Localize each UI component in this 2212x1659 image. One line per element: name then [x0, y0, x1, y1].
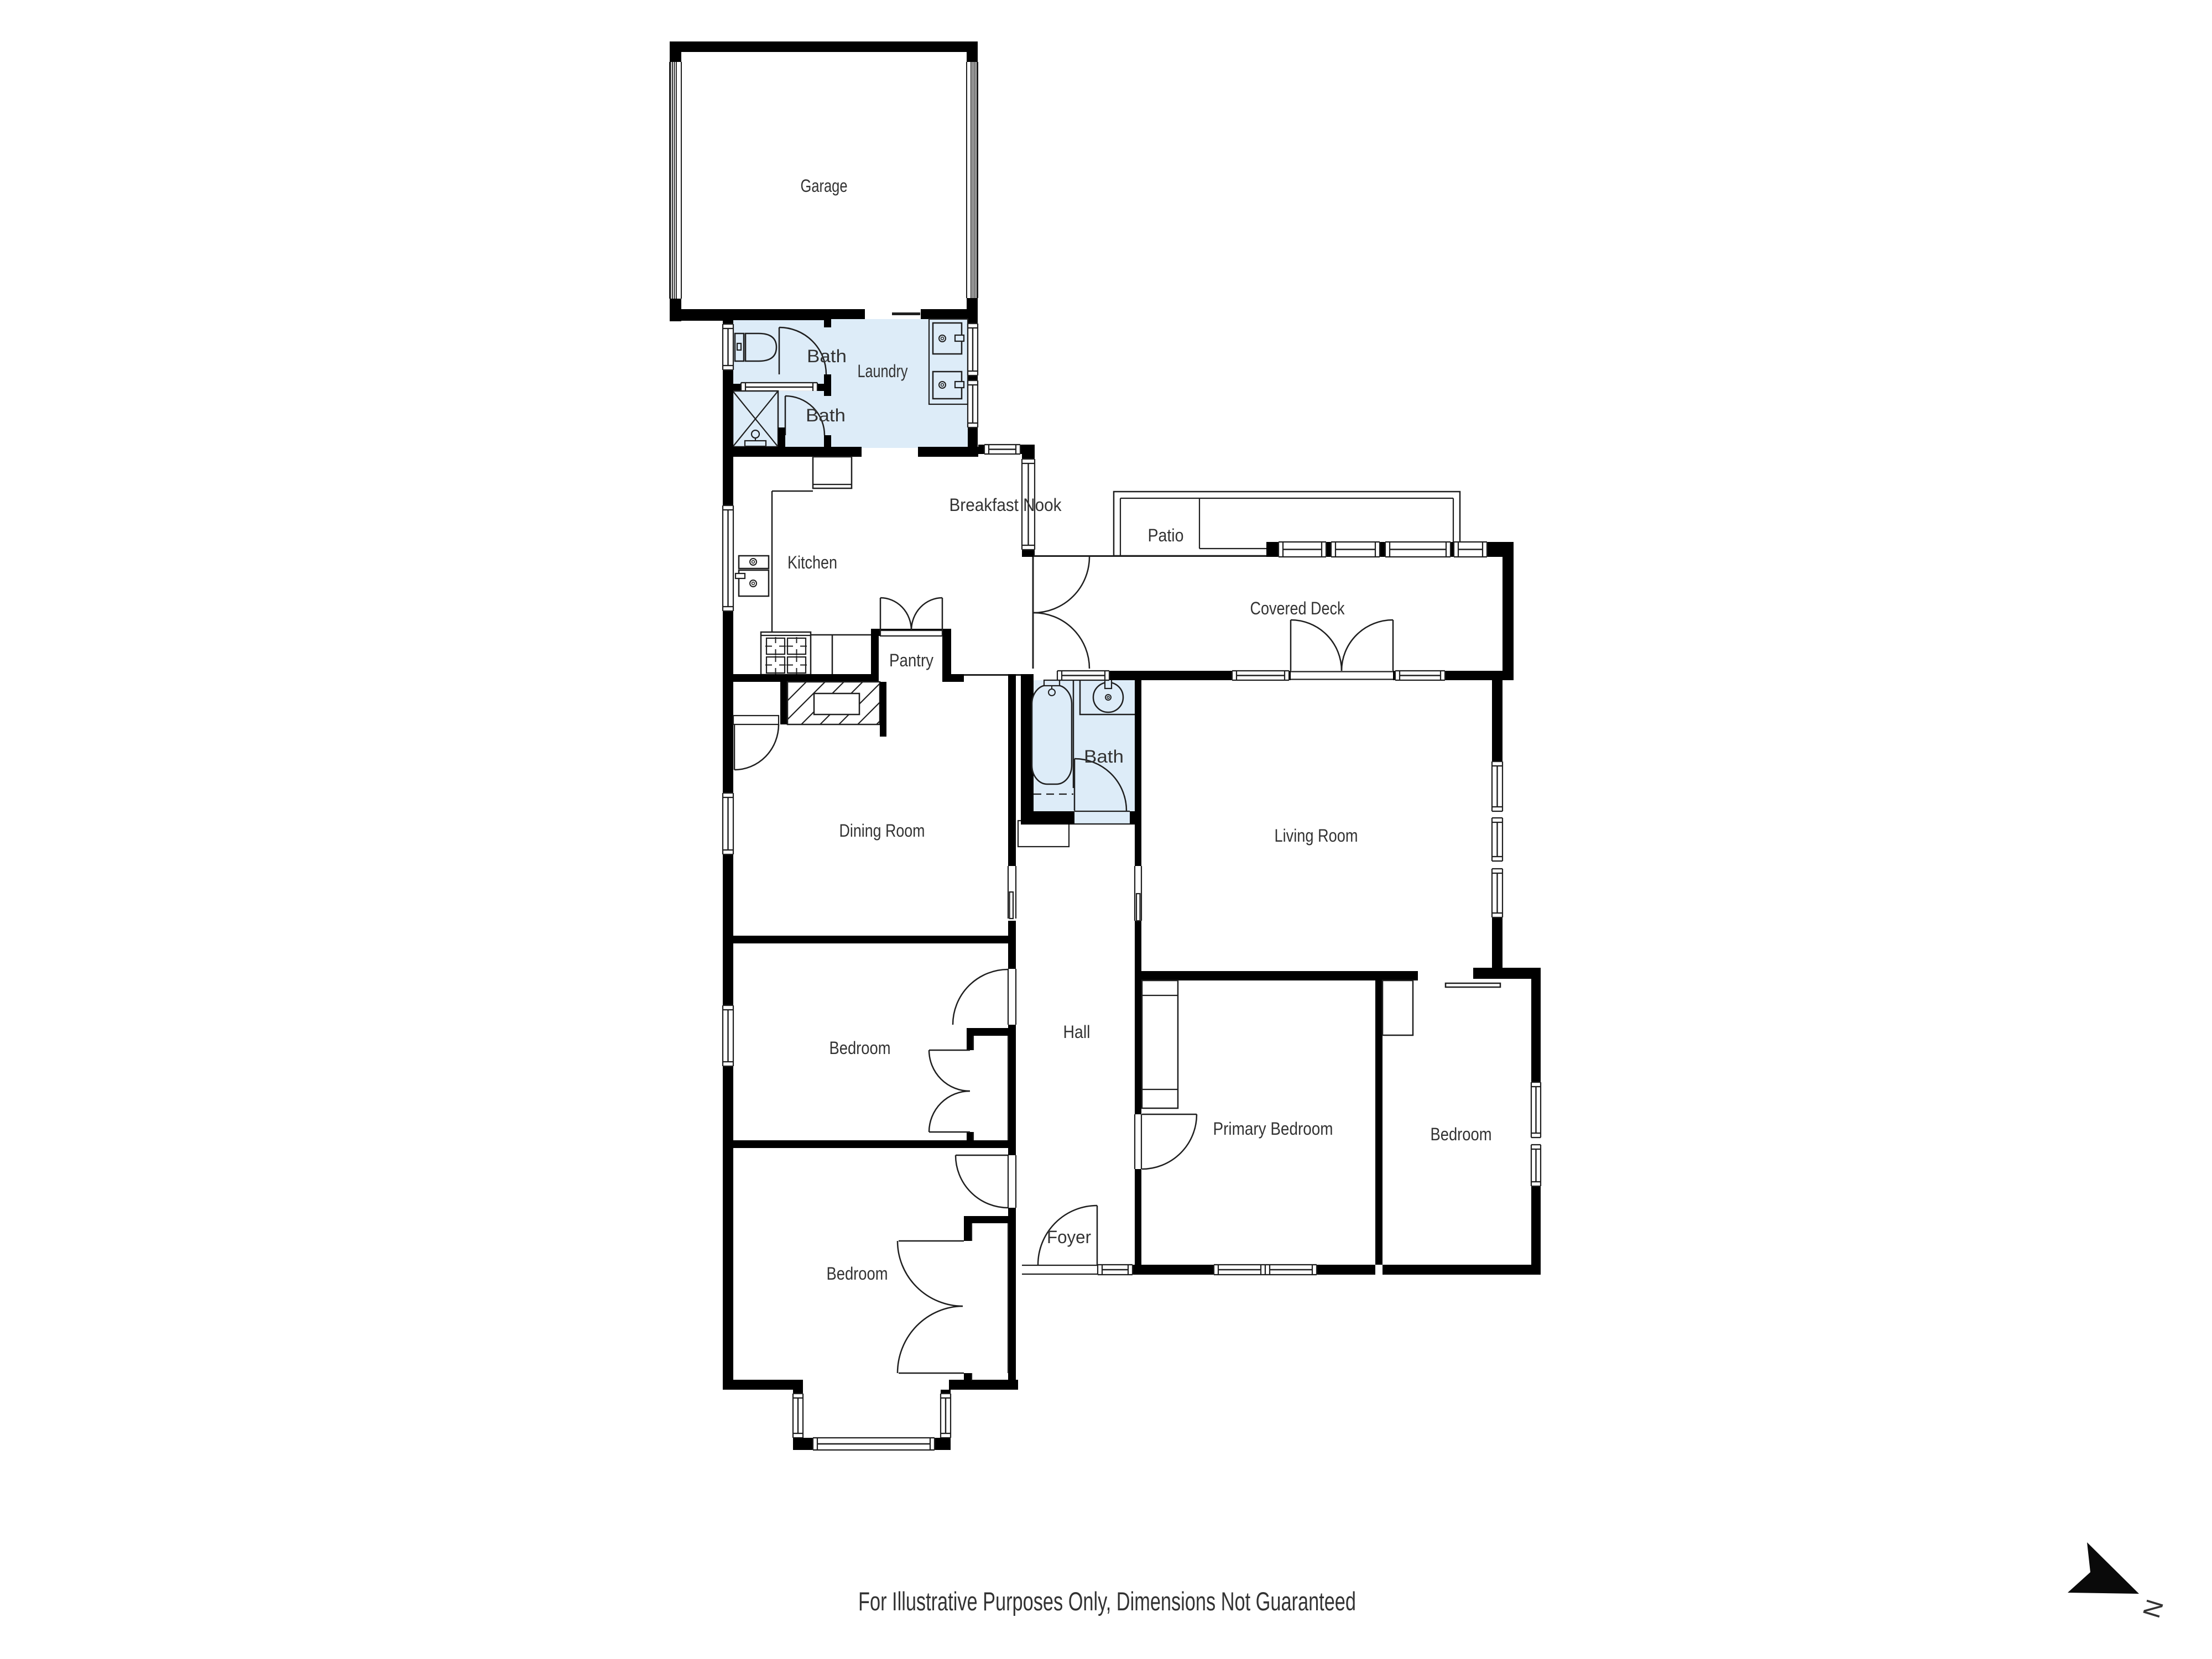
svg-text:For Illustrative Purposes Only: For Illustrative Purposes Only, Dimensio…: [858, 1587, 1356, 1616]
svg-text:Bath: Bath: [806, 405, 846, 425]
svg-text:Kitchen: Kitchen: [787, 552, 837, 572]
svg-text:Primary Bedroom: Primary Bedroom: [1213, 1119, 1333, 1139]
svg-text:Bedroom: Bedroom: [827, 1264, 888, 1284]
svg-text:Garage: Garage: [801, 176, 848, 196]
svg-text:Living Room: Living Room: [1275, 826, 1358, 846]
svg-text:Bath: Bath: [1084, 747, 1124, 766]
svg-text:Bath: Bath: [807, 346, 847, 366]
svg-text:Bedroom: Bedroom: [830, 1038, 891, 1058]
svg-text:Patio: Patio: [1148, 525, 1184, 545]
svg-text:Covered Deck: Covered Deck: [1250, 598, 1345, 618]
svg-text:Hall: Hall: [1063, 1022, 1091, 1042]
svg-text:Laundry: Laundry: [858, 361, 908, 381]
svg-text:Bedroom: Bedroom: [1431, 1124, 1492, 1144]
svg-text:Pantry: Pantry: [889, 650, 933, 670]
svg-text:Foyer: Foyer: [1047, 1227, 1091, 1247]
svg-text:Dining Room: Dining Room: [839, 821, 925, 841]
svg-text:Breakfast Nook: Breakfast Nook: [950, 495, 1062, 515]
